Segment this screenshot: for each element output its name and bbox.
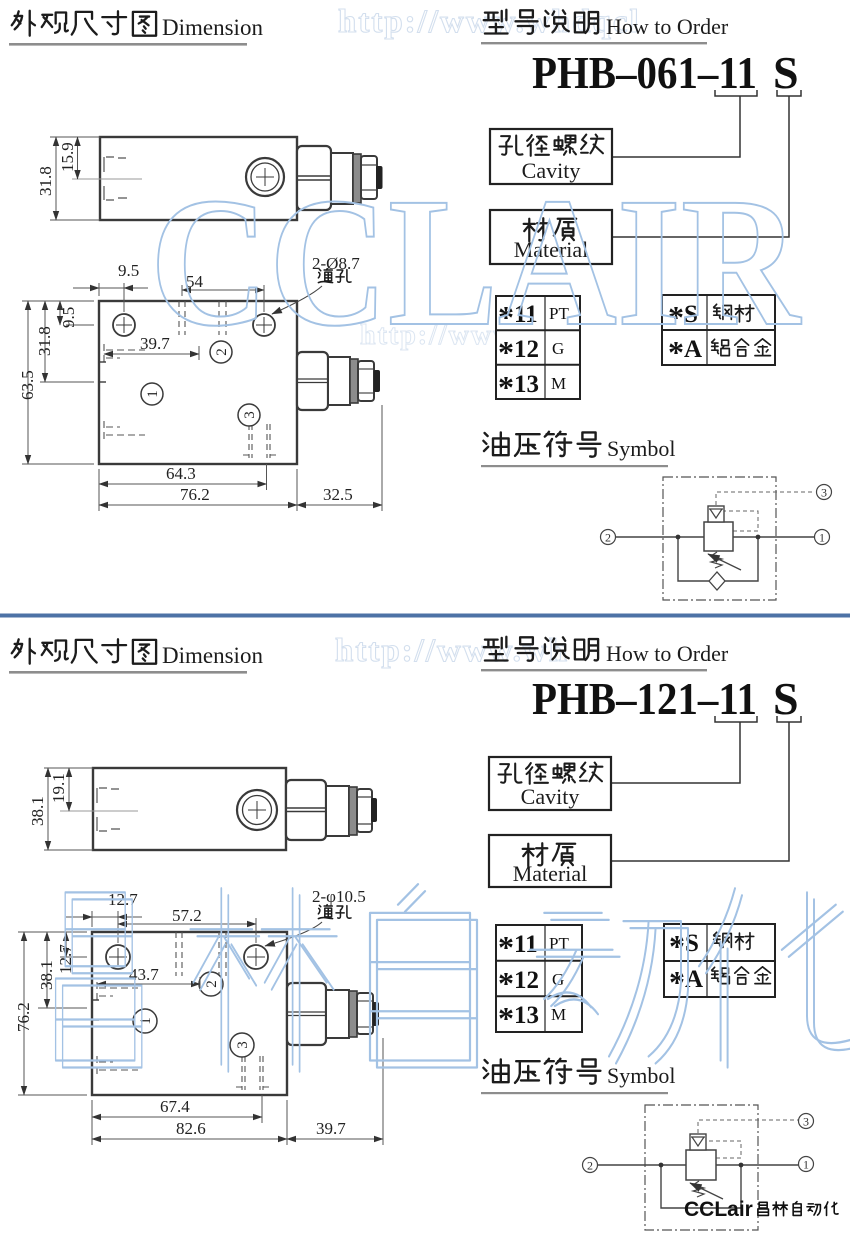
svg-text:3: 3: [821, 486, 827, 500]
svg-text:PHB–121–11: PHB–121–11: [532, 673, 757, 724]
svg-text:19.1: 19.1: [49, 773, 68, 803]
svg-text:*: *: [498, 965, 514, 1001]
svg-text:CCLAIR: CCLAIR: [150, 160, 802, 365]
svg-text:63.5: 63.5: [18, 370, 37, 400]
svg-text:1: 1: [138, 1017, 154, 1025]
svg-text:Symbol: Symbol: [607, 436, 675, 461]
svg-text:31.8: 31.8: [36, 166, 55, 196]
svg-text:Cavity: Cavity: [521, 784, 580, 809]
svg-text:9.5: 9.5: [59, 307, 78, 328]
svg-text:3: 3: [803, 1115, 809, 1129]
svg-text:*: *: [498, 369, 514, 405]
svg-text:32.5: 32.5: [323, 485, 353, 504]
svg-text:Dimension: Dimension: [162, 15, 263, 40]
svg-text:57.2: 57.2: [172, 906, 202, 925]
svg-text:12: 12: [514, 967, 539, 994]
svg-text:82.6: 82.6: [176, 1119, 206, 1138]
svg-text:M: M: [551, 1005, 566, 1024]
svg-text:Dimension: Dimension: [162, 643, 263, 668]
svg-text:How to Order: How to Order: [606, 641, 729, 666]
svg-text:CCLair: CCLair: [684, 1198, 753, 1221]
svg-text:Material: Material: [513, 861, 588, 886]
svg-text:76.2: 76.2: [180, 485, 210, 504]
svg-text:1: 1: [819, 531, 825, 545]
svg-text:39.7: 39.7: [316, 1119, 346, 1138]
svg-text:*: *: [669, 928, 685, 964]
svg-text:*: *: [669, 964, 685, 1000]
svg-text:67.4: 67.4: [160, 1097, 190, 1116]
svg-text:3: 3: [242, 411, 258, 419]
svg-text:M: M: [551, 374, 566, 393]
svg-text:G: G: [552, 970, 564, 989]
svg-text:PHB–061–11: PHB–061–11: [532, 47, 757, 98]
svg-text:Symbol: Symbol: [607, 1063, 675, 1088]
svg-text:13: 13: [514, 371, 539, 398]
svg-text:64.3: 64.3: [166, 464, 196, 483]
svg-text:2-φ10.5: 2-φ10.5: [312, 887, 366, 906]
svg-text:2: 2: [587, 1159, 593, 1173]
svg-text:2: 2: [605, 531, 611, 545]
svg-text:38.1: 38.1: [37, 960, 56, 990]
svg-text:43.7: 43.7: [129, 965, 159, 984]
svg-text:13: 13: [514, 1002, 539, 1029]
svg-text:38.1: 38.1: [28, 796, 47, 826]
svg-text:1: 1: [145, 390, 161, 398]
svg-text:76.2: 76.2: [14, 1002, 33, 1032]
svg-text:*: *: [498, 1000, 514, 1036]
svg-text:9.5: 9.5: [118, 261, 139, 280]
svg-text:31.8: 31.8: [35, 326, 54, 356]
svg-text:How to Order: How to Order: [606, 14, 729, 39]
svg-text:3: 3: [235, 1041, 251, 1049]
svg-text:15.9: 15.9: [58, 142, 77, 172]
svg-text:1: 1: [803, 1158, 809, 1172]
svg-text:2: 2: [204, 980, 220, 988]
svg-text:11: 11: [514, 931, 538, 958]
svg-text:*: *: [498, 929, 514, 965]
